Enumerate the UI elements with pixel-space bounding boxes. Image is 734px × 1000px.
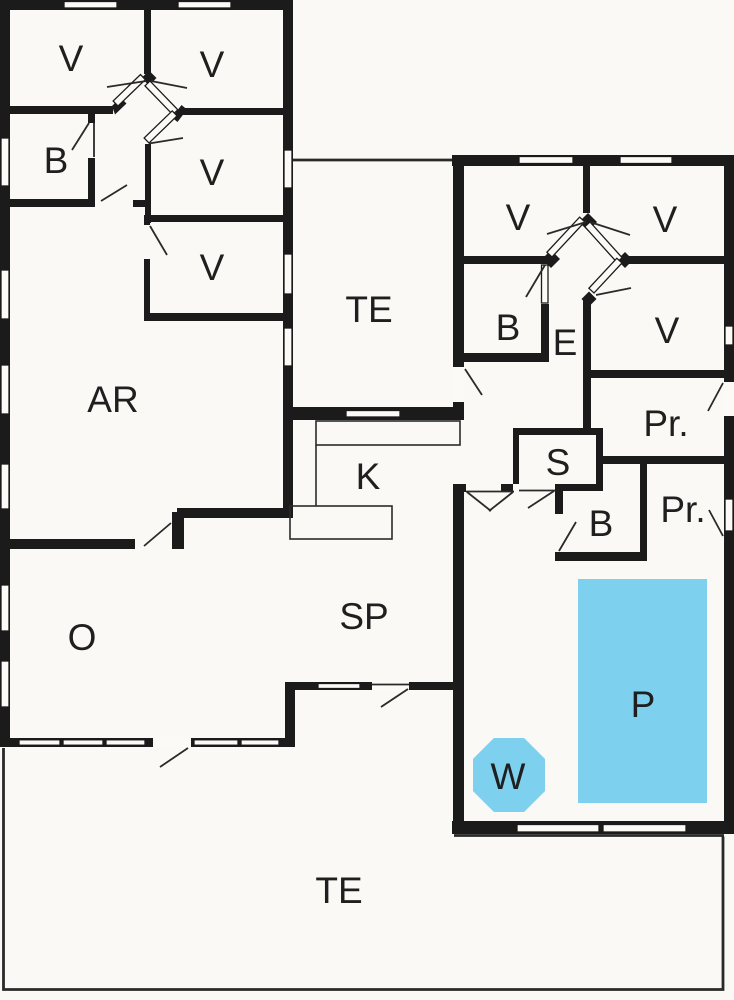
svg-text:V: V (59, 38, 84, 79)
svg-text:Pr.: Pr. (660, 489, 705, 530)
svg-text:SP: SP (339, 596, 388, 637)
svg-text:TE: TE (345, 289, 392, 330)
svg-text:V: V (200, 44, 225, 85)
svg-text:K: K (356, 456, 381, 497)
svg-text:AR: AR (87, 379, 138, 420)
svg-text:V: V (200, 152, 225, 193)
svg-text:O: O (68, 617, 97, 658)
svg-text:V: V (655, 310, 680, 351)
svg-text:V: V (200, 247, 225, 288)
svg-text:Pr.: Pr. (643, 403, 688, 444)
svg-text:TE: TE (315, 870, 362, 911)
svg-text:V: V (653, 199, 678, 240)
svg-text:P: P (631, 684, 656, 725)
svg-text:B: B (589, 503, 614, 544)
svg-text:B: B (496, 307, 521, 348)
svg-text:E: E (553, 322, 578, 363)
svg-text:B: B (44, 140, 69, 181)
svg-text:S: S (546, 442, 571, 483)
svg-text:V: V (506, 197, 531, 238)
svg-text:W: W (491, 756, 526, 797)
